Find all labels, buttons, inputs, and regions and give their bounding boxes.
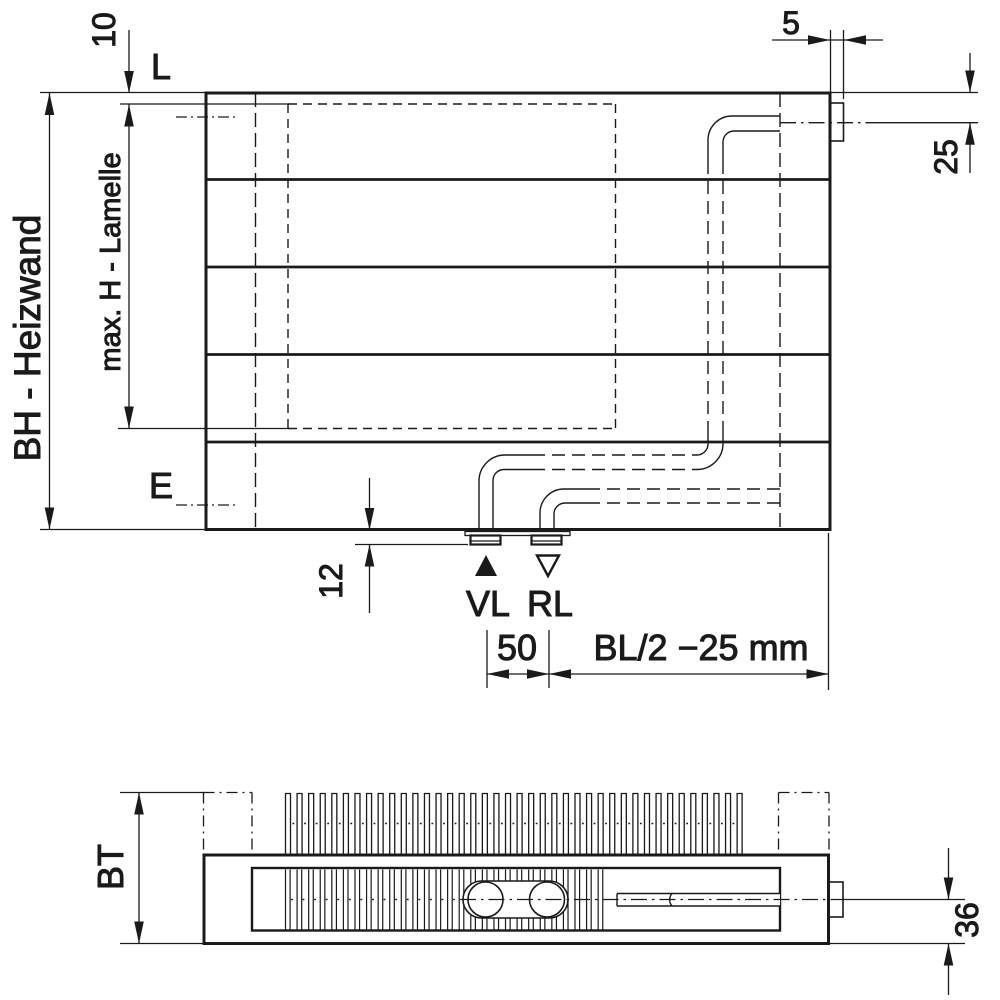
dim-connection-spacing xyxy=(487,669,829,679)
return-arrow-marker xyxy=(537,556,559,577)
label-spacing: 50 xyxy=(497,627,537,668)
label-build-height: BH - Heizwand xyxy=(7,215,48,462)
label-lamella: max. H - Lamelle xyxy=(95,152,127,371)
drawing-canvas: 10 L 5 25 BH - Heizwand max. H - Lamelle… xyxy=(0,0,1000,1000)
dim-build-depth xyxy=(134,793,144,944)
label-top-offset: 10 xyxy=(86,12,122,48)
supply-stub xyxy=(471,536,501,545)
label-drain: E xyxy=(149,465,173,506)
dim-side-offset xyxy=(965,53,975,173)
return-pipe xyxy=(540,489,780,531)
supply-arrow-marker xyxy=(475,555,497,576)
label-supply: VL xyxy=(466,583,510,624)
lamella-lines xyxy=(206,180,830,443)
label-tab-width: 5 xyxy=(782,5,800,41)
radiator-body-outline xyxy=(206,93,830,530)
side-connection-tab xyxy=(831,103,844,141)
label-pipe-offset: 36 xyxy=(949,902,985,938)
label-side-offset: 25 xyxy=(928,139,964,175)
label-vent: L xyxy=(151,46,171,87)
label-build-depth: BT xyxy=(90,844,131,890)
label-position: BL/2 −25 mm xyxy=(593,627,808,668)
dim-top-offset xyxy=(124,30,134,93)
technical-drawing-page: 10 L 5 25 BH - Heizwand max. H - Lamelle… xyxy=(0,0,1000,1000)
label-bottom-clearance: 12 xyxy=(313,563,349,599)
bracket-phantom-left xyxy=(204,793,253,854)
hidden-seam-lines xyxy=(256,93,781,530)
front-view: 10 L 5 25 BH - Heizwand max. H - Lamelle… xyxy=(7,5,978,690)
bottom-view: BT 36 xyxy=(90,793,985,996)
dim-bottom-clearance xyxy=(365,478,375,613)
bracket-phantom-right xyxy=(779,793,830,854)
label-return: RL xyxy=(527,583,573,624)
return-stub xyxy=(532,536,562,545)
